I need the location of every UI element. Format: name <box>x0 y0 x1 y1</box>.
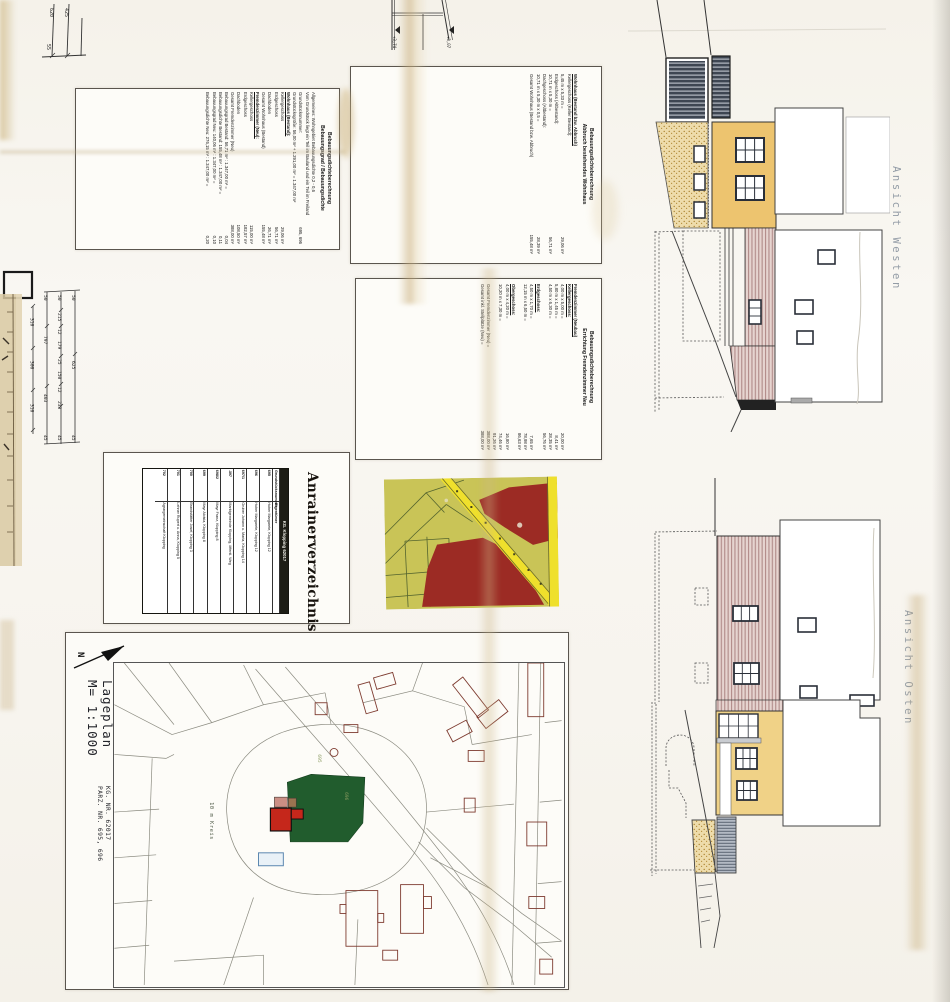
table-column-headers: GrundstücksnummerEigentümer <box>273 469 281 613</box>
calc-row: Erdgeschoss (Altbestand): <box>553 74 559 254</box>
calc-row: Kellergeschoss29,06 m² <box>279 92 285 244</box>
svg-text:150: 150 <box>56 371 62 380</box>
subject-parcel-green <box>287 774 365 842</box>
terrain-edge <box>695 873 701 948</box>
subject-building-red-wing <box>291 809 303 819</box>
svg-text:403: 403 <box>42 394 48 403</box>
calc-row: Fremdenzimmer (Neubau) <box>572 284 578 450</box>
table-row: 701Lehner Rupert u. Anna, Klopping 5 <box>168 469 181 613</box>
elevation-west-label: Ansicht Westen <box>882 166 902 316</box>
calc-row: Kellergeschoss: <box>565 284 571 450</box>
parcel-number: 695 <box>316 754 322 762</box>
calc-row: Erdgeschoss: <box>534 284 540 450</box>
calc-row: Wohnhaus (Bestand bzw. Abbruch) <box>572 74 578 254</box>
svg-text:310: 310 <box>29 404 35 413</box>
calc-panel-demolition-text: Bebauungsdichteberechnung Abbruch besteh… <box>358 74 594 254</box>
table-row: 700Brandstätter Josef, Klopping 3 <box>181 469 194 613</box>
svg-text:215: 215 <box>56 313 62 322</box>
paper-fold-ruler <box>0 294 22 566</box>
calc-row: Dachgeschoss (Altbestand): <box>541 74 547 254</box>
roof-edge-line <box>657 0 666 57</box>
svg-text:50: 50 <box>70 295 76 301</box>
zoning-map-excerpt <box>384 477 559 610</box>
calc-row: 10,71 m x 5,30 m x 0,5 =28,39 m² <box>534 74 540 254</box>
calc-row: 4,50 m x 6,30 m =28,35 m² <box>547 284 553 450</box>
calc-row: Kellergeschoss115,00 m² <box>248 92 254 244</box>
table-row: 696Huber Margarete, Klopping 12 <box>247 469 260 613</box>
subject-building-red <box>270 808 291 831</box>
calc-row: Obergeschoss: <box>510 284 516 450</box>
svg-text:233: 233 <box>56 401 62 410</box>
demolition-dashed-outline <box>655 231 724 412</box>
table-row: 702Agrargemeinschaft Klopping <box>155 469 168 613</box>
panel-title: Bebauungsdichteberechnung <box>587 74 594 254</box>
siteplan-title: Lageplan M= 1:1000 <box>84 680 114 792</box>
level-label: +3,07 <box>446 36 451 49</box>
demolition-dashed-outline-lower <box>650 702 694 876</box>
neighbour-list-title: Anrainerverzeichnis <box>296 472 320 600</box>
calc-row: Erdgeschoss182,57 m² <box>241 92 247 244</box>
gray-sill <box>791 398 812 403</box>
winter-garden-glazing <box>719 714 758 738</box>
table-row: 698/2Mayr Franz, Klopping 8 <box>208 469 221 613</box>
base-bar <box>737 400 776 410</box>
svg-text:310: 310 <box>29 318 35 327</box>
window-3pane-vertical <box>749 300 761 324</box>
calc-row: Bebauungsgrad Bestand: 56,71 m² : 1.347,… <box>223 92 229 244</box>
siteplan-map: 10 m Kreis 695 696 <box>114 663 562 985</box>
table-header: KG. Klopping 62017 <box>281 469 289 613</box>
calc-row: Allgemeines: Wohngebiet Bebauungsdichte … <box>310 92 316 244</box>
window-3pane-horizontal <box>733 606 758 621</box>
table-rows: 695Huber Margarete, Klopping 12696Huber … <box>155 469 273 613</box>
calc-row: 10,71 m x 5,30 m =56,71 m² <box>547 74 553 254</box>
blue-marker-rect <box>258 853 283 866</box>
dim-label: 620 <box>48 8 54 17</box>
terrain-edge <box>714 873 720 948</box>
ground-line <box>731 410 741 432</box>
wall-strip <box>720 743 731 815</box>
svg-text:45: 45 <box>56 435 62 441</box>
svg-text:797: 797 <box>42 336 48 345</box>
calc-row: Gesamt Fremdenzimmer (Neu)388,00 m² <box>229 92 235 244</box>
window-6pane <box>736 176 764 200</box>
calc-row: 10,20 m x 7,30 m =74,46 m² <box>497 284 503 450</box>
annex-brown <box>288 798 296 807</box>
svg-text:300: 300 <box>29 361 35 370</box>
svg-text:25: 25 <box>56 359 62 365</box>
table-row: .397Marktgemeinde Klopping, öffentl. Weg <box>221 469 234 613</box>
calc-row: Erdgeschoss56,71 m² <box>272 92 278 244</box>
calc-row: Kellergeschoss (Keller Bestand): <box>565 74 571 254</box>
calc-row: 12,15 m x 6,50 m =78,98 m² <box>522 284 528 450</box>
level-label: +3,74 <box>392 36 397 49</box>
svg-text:12: 12 <box>56 387 62 393</box>
neighbour-table: KG. Klopping 62017 GrundstücksnummerEige… <box>142 468 289 614</box>
shutter-hatch-narrow <box>712 56 730 118</box>
calc-row: 4,50 m x 1,70 m =7,65 m² <box>528 284 534 450</box>
panel-subtitle: Errichtung Fremdenzimmer Neu <box>581 284 588 450</box>
svg-text:625: 625 <box>70 361 76 370</box>
adjacent-building-lower <box>783 700 880 826</box>
window-6pane <box>737 781 757 800</box>
shutter-hatch <box>669 61 705 119</box>
calc-row: Vom Grundstück liegt ein Teil im Bauland… <box>303 92 309 244</box>
svg-text:50: 50 <box>42 295 48 301</box>
table-row: 699Mayr Aloisia, Klopping 8 <box>194 469 207 613</box>
annex-pink <box>274 797 287 807</box>
roof-edge-line <box>704 0 711 55</box>
roof-hatch-pink-lower <box>730 346 776 400</box>
circle-label: 10 m Kreis <box>208 802 214 840</box>
calc-rows: Fremdenzimmer (Neubau)Kellergeschoss:4,0… <box>479 284 578 450</box>
roof-band-pink <box>716 700 783 711</box>
window-6pane <box>734 663 759 684</box>
terrain-ticks <box>698 884 713 922</box>
calc-row: Gesamt Fremdenzimmer (Neu) =388,00 m² <box>485 284 491 450</box>
corner-smudge <box>0 620 14 710</box>
svg-text:45: 45 <box>70 435 76 441</box>
elevation-east-drawing <box>628 478 890 948</box>
window-6pane <box>736 138 764 162</box>
right-edge-shadow <box>932 0 950 1002</box>
calc-row: 4,00 m x 5,00 m =20,00 m² <box>559 284 565 450</box>
calc-row: Gesamt inkl. Stellplätze (Neu) =388,00 m… <box>479 284 485 450</box>
balcony-sill <box>717 738 761 743</box>
calc-panel-new-building-text: Bebauungsdichteberechnung Errichtung Fre… <box>362 284 594 450</box>
svg-text:45: 45 <box>42 435 48 441</box>
svg-text:12: 12 <box>56 329 62 335</box>
level-marker-icon <box>395 26 400 34</box>
wall-edge-lines <box>725 228 733 346</box>
parcel-number: 696 <box>343 792 349 800</box>
panel-subtitle: Bebauungsgrad / Bebauungsdichte <box>319 92 326 244</box>
calc-row: Bebauungsdichte Bestand: 155,48 m² : 1.3… <box>217 92 223 244</box>
dimension-strip-top: 620 425 55 <box>28 0 92 62</box>
dim-label: 55 <box>45 44 51 50</box>
small-side-windows <box>694 146 705 218</box>
terrain-diagonal <box>672 231 736 397</box>
demolition-dashed-outline-upper <box>655 531 717 704</box>
calc-rows: Allgemeines: Wohngebiet Bebauungsdichte … <box>204 92 316 244</box>
scanned-plan-sheet: 620 425 55 +3,74 +3,07 Bebauungsdichtebe… <box>0 0 950 1002</box>
adjacent-building-upper <box>780 520 880 700</box>
calc-row: Fremdenzimmer (Neu): <box>254 92 260 244</box>
calc-row: Bebauungsdichte Neu: 276,15 m² : 1.347,0… <box>204 92 210 244</box>
svg-text:179: 179 <box>56 341 62 350</box>
calc-row: Gesamt Wohnhaus (Bestand)155,48 m² <box>260 92 266 244</box>
elevation-west-drawing <box>628 0 890 432</box>
calc-row: Grundstücksgröße: 56,00 m² + 1.291,00 m²… <box>291 92 297 244</box>
panel-title: Bebauungsdichteberechnung <box>587 284 594 450</box>
calc-row: Gesamt Wohnhaus (Bestand bzw. Abbruch)15… <box>528 74 534 254</box>
roof-hatch-pink <box>745 228 776 346</box>
calc-row: 4,00 m x 4,20 m =16,80 m² <box>503 284 509 450</box>
panel-subtitle: Abbruch bestehendes Wohnhaus <box>581 74 588 254</box>
table-row: 697/1Gruber Johann u. Maria, Klopping 14 <box>234 469 247 613</box>
calc-row: 5,45 m x 5,33 m =29,06 m² <box>559 74 565 254</box>
elevation-east-label: Ansicht Osten <box>894 610 914 756</box>
dim-label: 425 <box>63 8 69 17</box>
panel-title: Bebauungsdichteberechnung <box>325 92 332 244</box>
window-6pane <box>736 748 757 769</box>
calc-rows: Wohnhaus (Bestand bzw. Abbruch)Kellerges… <box>528 74 578 254</box>
corner-fold <box>0 0 16 140</box>
adjacent-building <box>775 108 843 214</box>
table-row: 695Huber Margarete, Klopping 12 <box>260 469 273 613</box>
svg-text:50: 50 <box>56 295 62 301</box>
calc-row: 5,80 m x 1,45 m =8,41 m² <box>553 284 559 450</box>
calc-row: Bebauungsgrad Neu: 140,06 m² : 1.347,00 … <box>210 92 216 244</box>
stair-band-gray <box>717 817 736 873</box>
drawing-fragment-top: +3,74 +3,07 <box>373 0 468 52</box>
calc-panel-density-text: Bebauungsdichteberechnung Bebauungsgrad … <box>84 92 332 244</box>
svg-text:N: N <box>75 652 85 657</box>
